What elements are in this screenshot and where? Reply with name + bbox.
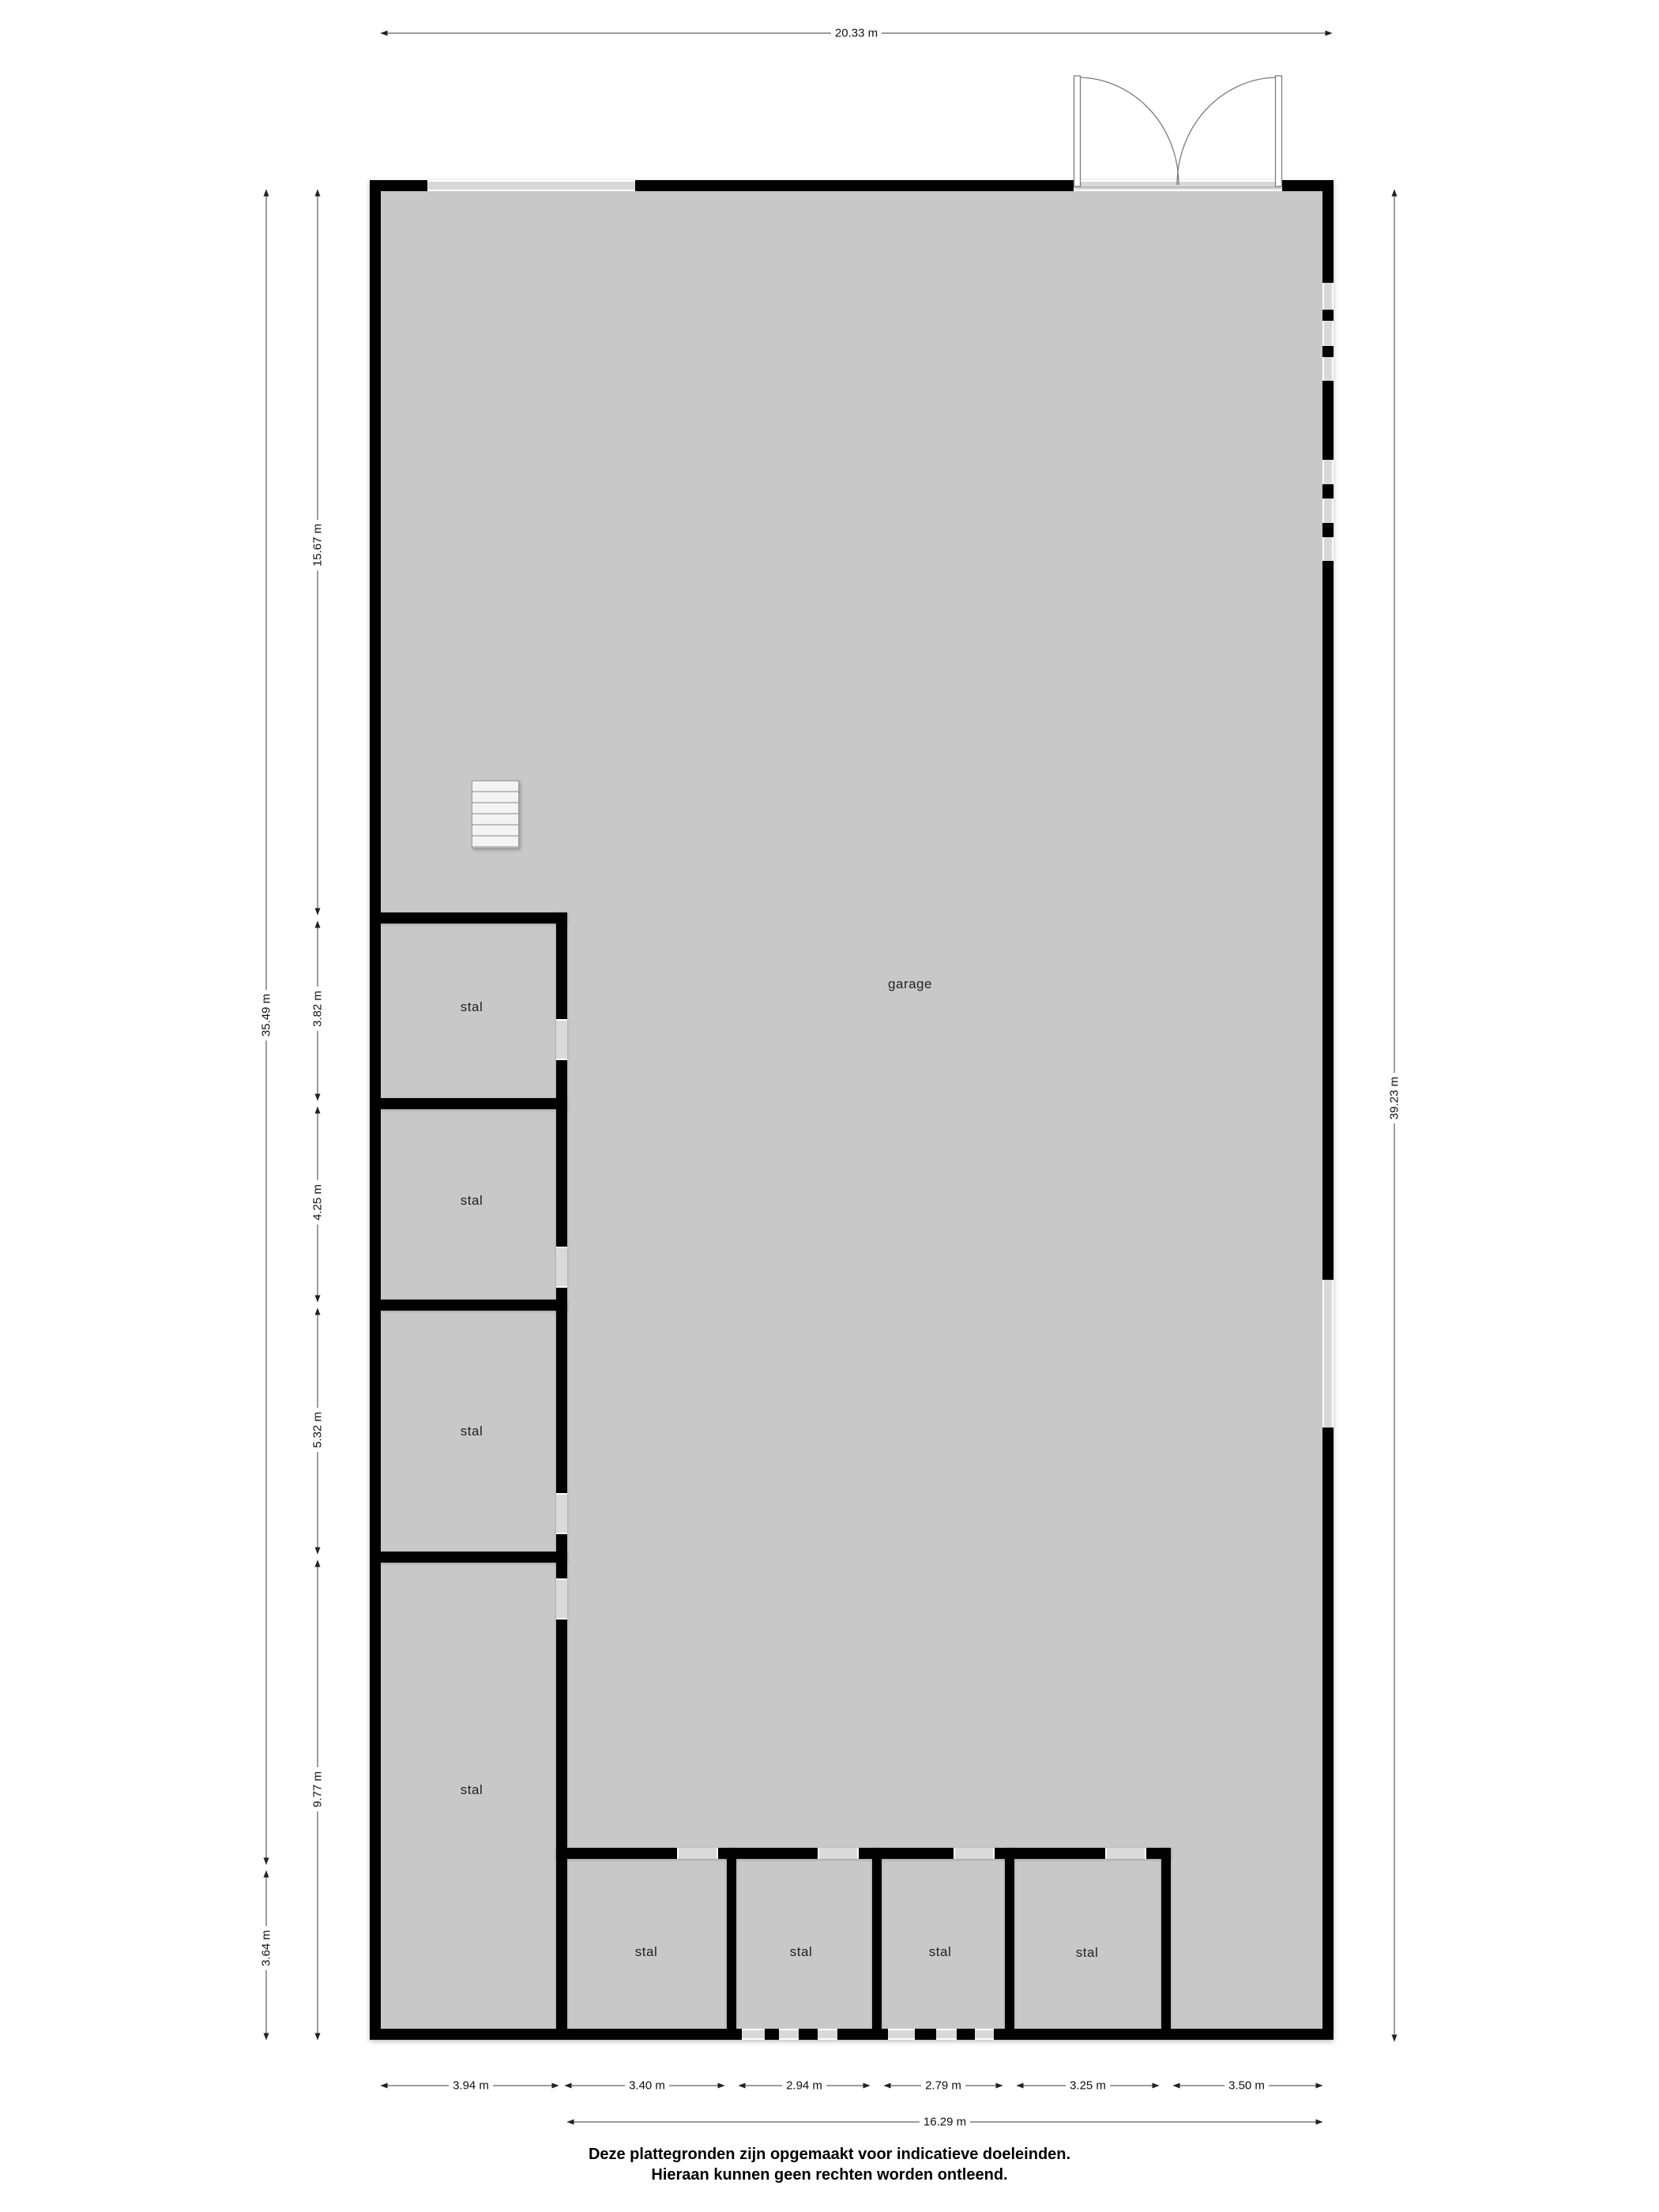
entry-door-arc-right	[1177, 77, 1276, 185]
dim-label-bottom-total: 16.29 m	[920, 2116, 970, 2129]
door-stal1	[556, 1019, 567, 1060]
dim-label-bottom-seg5: 3.25 m	[1066, 2079, 1110, 2093]
wall-stal1-stal2	[381, 1098, 567, 1109]
window-top-wall	[427, 180, 635, 191]
dim-label-left-seg2: 3.82 m	[311, 987, 325, 1031]
window-right-4	[1322, 460, 1334, 484]
room-label-stal-6: stal	[790, 1944, 812, 1960]
entry-door-leaf-left	[1074, 76, 1081, 186]
dim-label-left-seg3: 4.25 m	[311, 1180, 325, 1224]
wall-stal3-stal4	[381, 1552, 567, 1563]
dim-label-right-height: 39.23 m	[1388, 1073, 1401, 1123]
window-right-6	[1322, 537, 1334, 561]
wall-stal1-top	[381, 912, 567, 924]
dim-label-left-bottom: 3.64 m	[260, 1926, 273, 1970]
window-right-5	[1322, 498, 1334, 523]
dim-label-left-total: 35.49 m	[260, 990, 273, 1040]
window-bottom-4	[888, 2029, 915, 2040]
entry-door-leaf-right	[1276, 76, 1282, 186]
dim-label-top-width: 20.33 m	[831, 27, 882, 40]
window-bottom-2	[779, 2029, 799, 2040]
door-bottom-room2	[818, 1848, 859, 1859]
dim-label-left-seg5: 9.77 m	[311, 1767, 325, 1811]
dim-label-bottom-seg6: 3.50 m	[1224, 2079, 1269, 2093]
door-bottom-room3	[954, 1848, 995, 1859]
room-label-stal-3: stal	[461, 1424, 483, 1439]
wall-stal-column-right	[556, 912, 567, 2029]
building-outline	[370, 180, 1334, 2040]
window-right-1	[1322, 283, 1334, 310]
door-stal4	[556, 1578, 567, 1619]
floor-plan: garage stal stal stal stal stal stal sta…	[0, 0, 1659, 2212]
stairs-icon	[472, 781, 519, 848]
wall-bottom-room3-room4	[1005, 1848, 1014, 2029]
wall-bottom-room4-right	[1161, 1848, 1171, 2029]
wall-stal2-stal3	[381, 1300, 567, 1311]
room-label-stal-1: stal	[461, 999, 483, 1015]
window-bottom-6	[975, 2029, 994, 2040]
door-stal2	[556, 1247, 567, 1288]
room-label-stal-7: stal	[929, 1944, 951, 1960]
dim-label-left-seg1: 15.67 m	[311, 520, 325, 570]
footer-disclaimer-line1: Deze plattegronden zijn opgemaakt voor i…	[589, 2146, 1070, 2164]
footer-disclaimer-line2: Hieraan kunnen geen rechten worden ontle…	[651, 2166, 1007, 2184]
room-label-stal-5: stal	[635, 1944, 657, 1960]
dim-label-bottom-seg1: 3.94 m	[449, 2079, 493, 2093]
room-label-garage: garage	[888, 976, 932, 992]
door-bottom-room1	[677, 1848, 718, 1859]
room-label-stal-2: stal	[461, 1193, 483, 1209]
wall-bottom-room2-room3	[872, 1848, 882, 2029]
entry-door-opening	[1074, 180, 1282, 191]
window-bottom-1	[742, 2029, 765, 2040]
entry-door-arc-left	[1081, 77, 1179, 185]
dim-label-left-seg4: 5.32 m	[311, 1408, 325, 1452]
room-label-stal-4: stal	[461, 1782, 483, 1798]
wall-bottom-row-top	[556, 1848, 1171, 1859]
room-label-stal-8: stal	[1076, 1945, 1098, 1961]
dim-label-bottom-seg4: 2.79 m	[921, 2079, 965, 2093]
entry-double-door	[1074, 76, 1282, 187]
window-bottom-5	[936, 2029, 957, 2040]
window-bottom-3	[818, 2029, 837, 2040]
dim-label-bottom-seg3: 2.94 m	[782, 2079, 826, 2093]
dim-label-bottom-seg2: 3.40 m	[625, 2079, 669, 2093]
door-stal3	[556, 1493, 567, 1534]
door-bottom-room4	[1105, 1848, 1146, 1859]
wall-bottom-room1-room2	[727, 1848, 736, 2029]
window-right-2	[1322, 321, 1334, 346]
window-right-long	[1322, 1280, 1334, 1428]
window-right-3	[1322, 357, 1334, 381]
